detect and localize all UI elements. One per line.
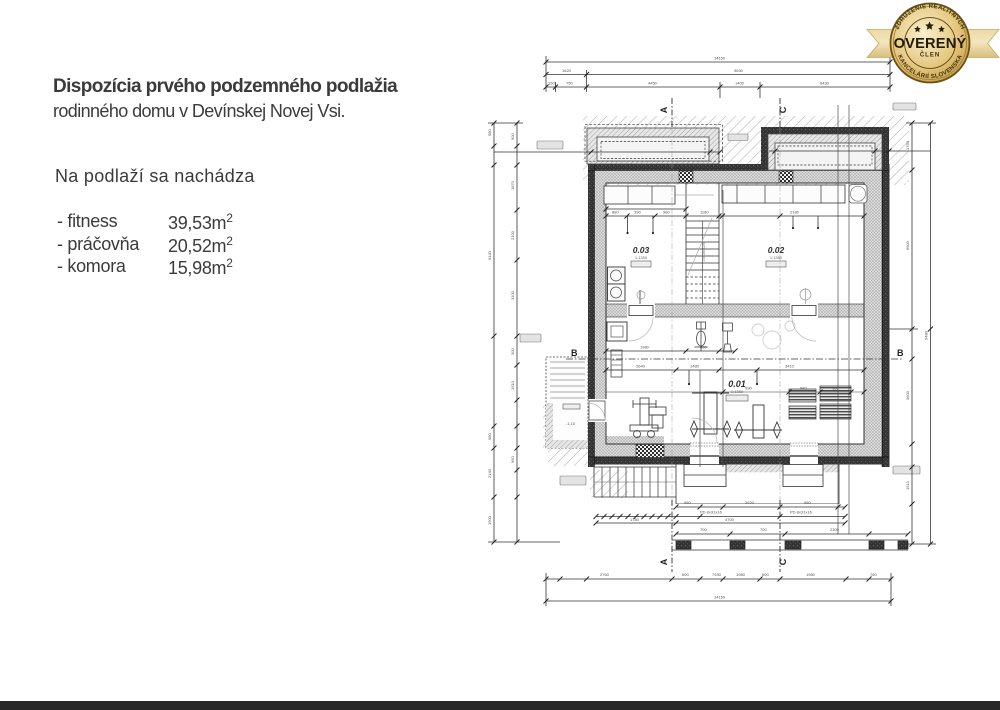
svg-text:3600: 3600: [905, 390, 910, 400]
svg-text:0.01: 0.01: [728, 379, 746, 389]
svg-text:600: 600: [682, 572, 689, 577]
svg-text:9630: 9630: [734, 68, 744, 73]
svg-text:880: 880: [700, 345, 707, 350]
svg-text:1:1350: 1:1350: [731, 389, 744, 394]
svg-text:1980: 1980: [640, 345, 650, 350]
svg-text:B: B: [571, 348, 578, 358]
svg-text:150: 150: [548, 81, 555, 86]
svg-text:700: 700: [700, 527, 707, 532]
svg-text:-1,10: -1,10: [566, 421, 576, 426]
svg-text:1750: 1750: [905, 140, 910, 150]
svg-text:1180: 1180: [700, 210, 709, 215]
svg-text:980: 980: [800, 386, 807, 391]
svg-text:2640: 2640: [636, 364, 646, 369]
svg-text:300: 300: [510, 348, 515, 355]
svg-text:14150: 14150: [714, 595, 726, 600]
svg-text:980: 980: [487, 433, 492, 440]
svg-text:1510: 1510: [905, 480, 910, 490]
svg-text:ČLEN: ČLEN: [920, 52, 940, 59]
svg-text:PD 8x31x16: PD 8x31x16: [790, 510, 813, 515]
svg-text:C: C: [778, 106, 788, 113]
svg-text:600: 600: [762, 572, 769, 577]
svg-text:580: 580: [487, 129, 492, 136]
svg-text:A: A: [659, 106, 669, 113]
svg-text:1510: 1510: [510, 380, 515, 390]
svg-text:4450: 4450: [648, 81, 658, 86]
svg-text:14150: 14150: [714, 56, 726, 61]
svg-text:7930: 7930: [712, 572, 722, 577]
svg-text:9480: 9480: [924, 330, 929, 340]
svg-text:1480: 1480: [690, 364, 700, 369]
svg-text:760: 760: [870, 572, 877, 577]
svg-text:1980: 1980: [806, 572, 816, 577]
svg-text:980: 980: [663, 210, 670, 215]
svg-text:A: A: [659, 558, 669, 565]
svg-text:960: 960: [684, 500, 691, 505]
svg-text:PD 8x31x16: PD 8x31x16: [700, 510, 723, 515]
svg-text:3410: 3410: [785, 364, 795, 369]
svg-text:2100: 2100: [510, 230, 515, 240]
svg-text:2180: 2180: [790, 210, 800, 215]
svg-text:1870: 1870: [510, 180, 515, 190]
svg-text:1980: 1980: [736, 572, 746, 577]
svg-text:6600: 6600: [905, 240, 910, 250]
svg-text:1400: 1400: [735, 81, 745, 86]
svg-text:4700: 4700: [725, 517, 735, 522]
svg-text:OVERENÝ: OVERENÝ: [894, 34, 967, 52]
svg-text:1:1350: 1:1350: [635, 255, 648, 260]
svg-text:0.03: 0.03: [633, 245, 650, 255]
svg-text:1620: 1620: [562, 68, 572, 73]
svg-text:2140: 2140: [487, 468, 492, 478]
svg-text:2760: 2760: [600, 572, 610, 577]
svg-text:750: 750: [566, 81, 573, 86]
svg-text:2300: 2300: [830, 527, 840, 532]
svg-text:3100: 3100: [510, 290, 515, 300]
svg-text:960: 960: [510, 456, 515, 463]
svg-text:390: 390: [634, 210, 641, 215]
svg-text:14x186x280: 14x186x280: [702, 241, 706, 262]
svg-text:0.02: 0.02: [768, 245, 785, 255]
svg-text:6430: 6430: [820, 81, 830, 86]
svg-text:960: 960: [804, 500, 811, 505]
svg-text:1:1350: 1:1350: [770, 255, 783, 260]
svg-text:B: B: [897, 348, 904, 358]
svg-text:980: 980: [832, 386, 839, 391]
svg-text:9140: 9140: [487, 250, 492, 260]
svg-text:700: 700: [760, 527, 767, 532]
svg-text:1900: 1900: [487, 515, 492, 525]
svg-text:990: 990: [745, 386, 752, 391]
svg-text:900: 900: [510, 133, 515, 140]
svg-text:2620: 2620: [745, 500, 755, 505]
svg-text:880: 880: [612, 210, 619, 215]
svg-text:1780: 1780: [630, 517, 640, 522]
svg-text:C: C: [778, 558, 788, 565]
